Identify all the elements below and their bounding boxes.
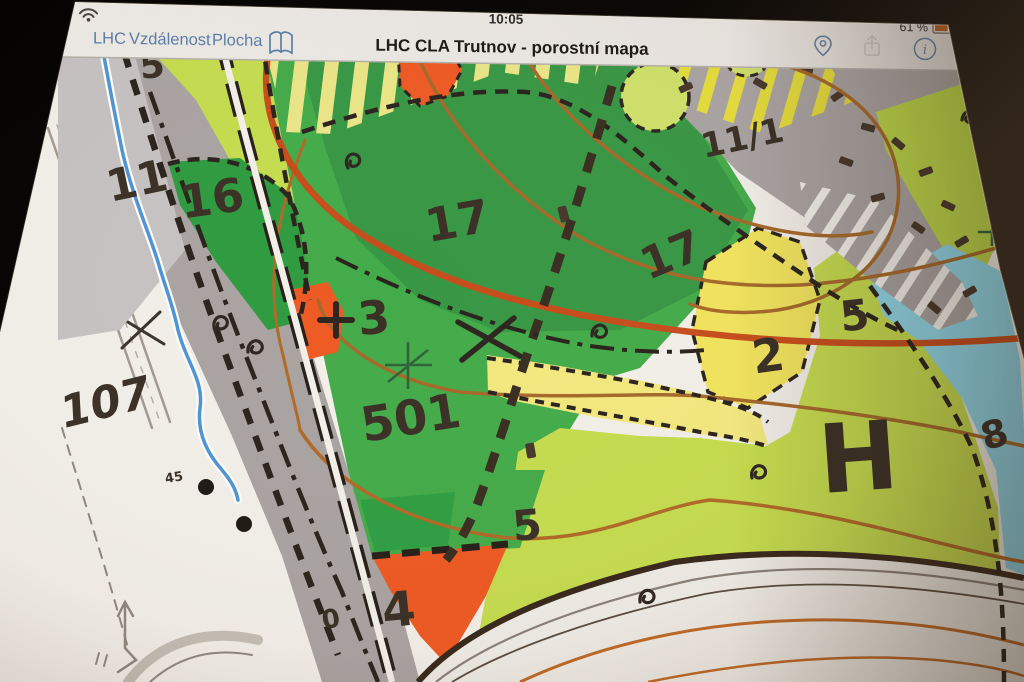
ipad-photo: 5 11 16 17 17 11/1 3 501 107 2 5 8 5 4 H… <box>0 0 1024 682</box>
screenshot-canvas: 5 11 16 17 17 11/1 3 501 107 2 5 8 5 4 H… <box>0 0 1024 682</box>
ipad-screen: 5 11 16 17 17 11/1 3 501 107 2 5 8 5 4 H… <box>0 0 1024 682</box>
